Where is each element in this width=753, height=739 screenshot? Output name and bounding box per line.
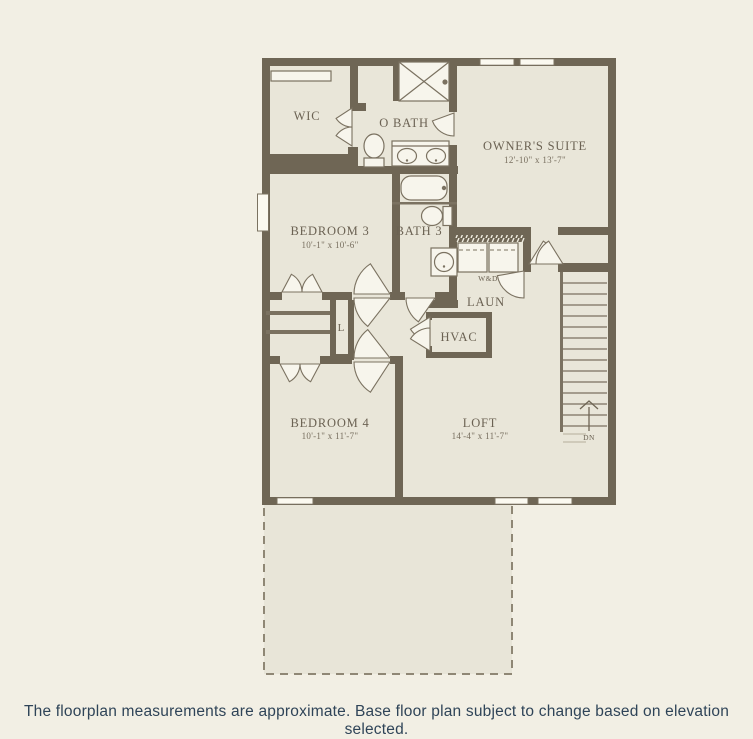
wall-segment (608, 58, 616, 505)
owners-bath-toilet (364, 134, 384, 167)
wall-segment (262, 356, 280, 364)
wall-segment (486, 312, 492, 358)
wall-segment (262, 166, 458, 174)
window (520, 59, 554, 65)
room-label-bedroom4: BEDROOM 4 (290, 416, 369, 430)
room-label-bedroom3: BEDROOM 3 (290, 224, 369, 238)
wall-segment (558, 263, 616, 272)
room-dims-loft: 14'-4" x 11'-7" (452, 431, 509, 441)
disclaimer-caption: The floorplan measurements are approxima… (0, 703, 753, 739)
room-label-owners-bath: O BATH (379, 116, 429, 130)
wall-segment (426, 352, 492, 358)
bathtub (401, 176, 447, 200)
laundry-closet-track (455, 235, 525, 242)
room-dims-bedroom4: 10'-1" x 11'-7" (302, 431, 359, 441)
wall-segment (320, 356, 352, 364)
wall-segment (262, 154, 356, 166)
window (480, 59, 514, 65)
wall-segment (393, 58, 399, 101)
wall-segment (330, 300, 336, 360)
lower-level-outline (264, 502, 512, 674)
shower-head (442, 79, 447, 84)
wall-segment (262, 58, 270, 505)
wall-segment (435, 292, 457, 300)
window (495, 498, 528, 504)
tub-alcove-wall (392, 202, 457, 205)
room-dims-owners-suite: 12'-10" x 13'-7" (504, 155, 566, 165)
label-washer-dryer: W&D (478, 274, 498, 283)
floorplan-page: WIC O BATH OWNER'S SUITE 12'-10" x 13'-7… (0, 0, 753, 736)
room-label-hvac: HVAC (440, 330, 477, 344)
bath3-sink (431, 248, 457, 276)
wall-segment (449, 58, 457, 112)
wic-shelf (271, 71, 331, 81)
window (538, 498, 572, 504)
wall-segment (390, 292, 405, 300)
stair-rail-wall (560, 272, 563, 432)
room-label-loft: LOFT (463, 416, 497, 430)
wall-segment (322, 292, 352, 300)
wall-segment (395, 356, 403, 505)
closet-shelf-line (266, 330, 330, 334)
room-label-wic: WIC (294, 109, 321, 123)
room-label-laundry: LAUN (467, 295, 505, 309)
floorplan-drawing: WIC O BATH OWNER'S SUITE 12'-10" x 13'-7… (0, 0, 753, 736)
room-dims-bedroom3: 10'-1" x 10'-6" (301, 240, 358, 250)
shower (399, 62, 449, 101)
wall-segment (558, 227, 616, 235)
double-vanity (392, 141, 449, 166)
wall-segment (350, 58, 358, 104)
wall-segment (449, 227, 531, 235)
bath3-toilet (422, 207, 453, 226)
wall-segment (449, 145, 457, 308)
label-stairs-dn: DN (583, 433, 595, 442)
room-label-bath3: BATH 3 (396, 224, 443, 238)
window (258, 194, 269, 231)
wall-segment (348, 147, 358, 166)
closet-shelf-line (266, 311, 330, 315)
wall-segment (348, 300, 354, 360)
room-label-owners-suite: OWNER'S SUITE (483, 139, 587, 153)
wall-segment (426, 312, 492, 318)
wall-segment (262, 292, 282, 300)
room-label-linen: L (338, 322, 345, 334)
window (277, 498, 313, 504)
